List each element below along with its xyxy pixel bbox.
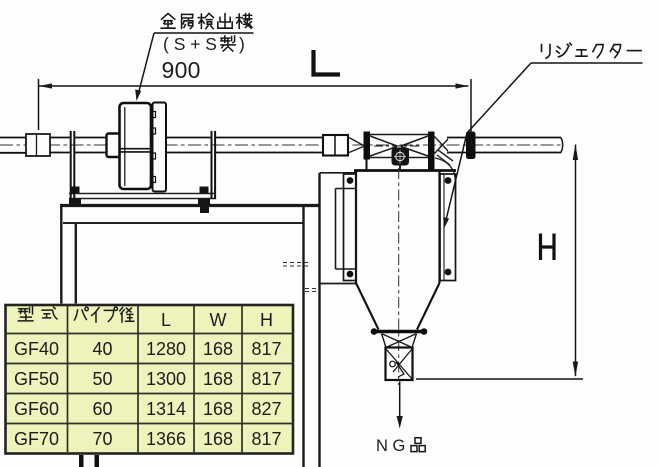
- svg-text:1366: 1366: [146, 429, 186, 449]
- svg-text:60: 60: [92, 399, 112, 419]
- svg-text:GF40: GF40: [14, 339, 59, 359]
- svg-text:900: 900: [162, 57, 201, 83]
- svg-text:168: 168: [203, 399, 233, 419]
- svg-text:GF70: GF70: [14, 429, 59, 449]
- svg-text:L: L: [161, 310, 171, 330]
- svg-text:50: 50: [92, 369, 112, 389]
- svg-text:168: 168: [203, 339, 233, 359]
- svg-text:827: 827: [251, 399, 281, 419]
- svg-text:1300: 1300: [146, 369, 186, 389]
- svg-text:168: 168: [203, 369, 233, 389]
- svg-text:817: 817: [251, 339, 281, 359]
- svg-text:1280: 1280: [146, 339, 186, 359]
- svg-text:N G: N G: [376, 437, 405, 455]
- svg-text:817: 817: [251, 369, 281, 389]
- svg-text:817: 817: [251, 429, 281, 449]
- svg-text:): ): [239, 34, 245, 54]
- svg-text:GF60: GF60: [14, 399, 59, 419]
- svg-text:70: 70: [92, 429, 112, 449]
- svg-text:W: W: [210, 310, 227, 330]
- svg-text:1314: 1314: [146, 399, 186, 419]
- svg-text:( S + S: ( S + S: [163, 34, 217, 54]
- svg-text:168: 168: [203, 429, 233, 449]
- svg-text:GF50: GF50: [14, 369, 59, 389]
- svg-text:40: 40: [92, 339, 112, 359]
- svg-text:H: H: [260, 310, 273, 330]
